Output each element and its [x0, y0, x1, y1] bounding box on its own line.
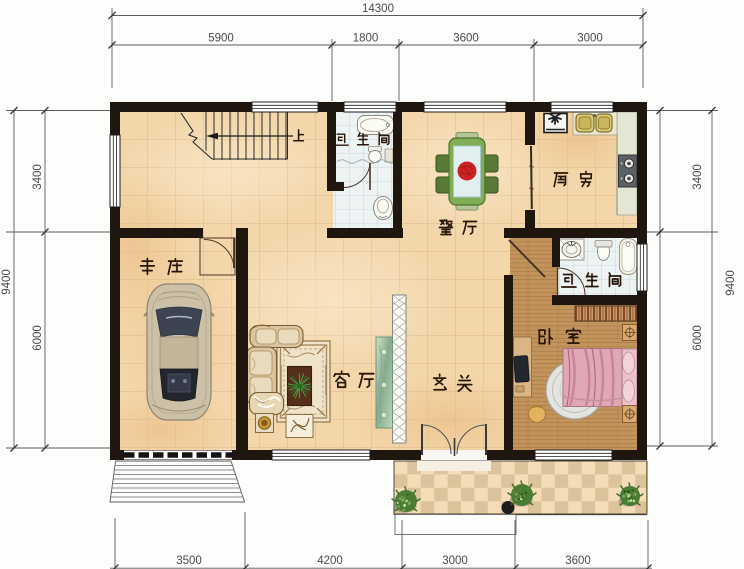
svg-text:3600: 3600	[453, 33, 479, 45]
svg-text:3400: 3400	[32, 164, 44, 190]
svg-text:3000: 3000	[577, 33, 603, 45]
svg-text:5900: 5900	[208, 33, 234, 45]
svg-text:14300: 14300	[362, 3, 394, 15]
svg-text:3000: 3000	[442, 555, 468, 567]
svg-text:3400: 3400	[692, 164, 704, 190]
svg-text:9400: 9400	[725, 270, 737, 296]
svg-text:6000: 6000	[692, 325, 704, 351]
svg-text:1800: 1800	[353, 33, 379, 45]
svg-text:9400: 9400	[1, 269, 13, 295]
svg-text:3600: 3600	[565, 555, 591, 567]
svg-text:6000: 6000	[32, 325, 44, 351]
svg-text:4200: 4200	[317, 555, 343, 567]
svg-text:3500: 3500	[176, 555, 202, 567]
